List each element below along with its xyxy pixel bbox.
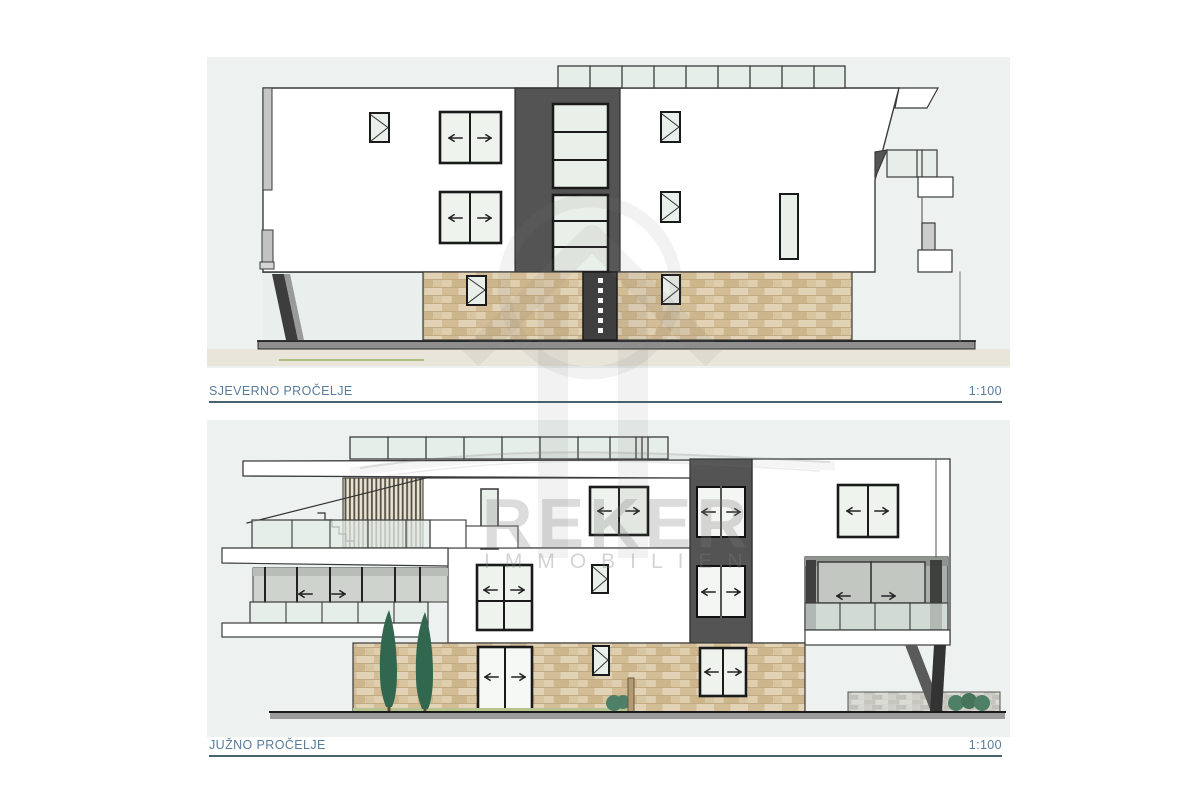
casement-window — [661, 112, 680, 142]
north-elevation-scale: 1:100 — [969, 384, 1002, 398]
floor-slab — [222, 548, 448, 566]
south-elevation-drawing — [207, 420, 1010, 737]
floor-slab — [222, 623, 428, 637]
north-elevation-label: SJEVERNO PROČELJE — [209, 384, 353, 398]
south-elevation-caption: JUŽNO PROČELJE 1:100 — [209, 738, 1002, 757]
entrance-door — [583, 272, 617, 340]
stacked-window — [553, 104, 608, 188]
glass-balustrade — [805, 603, 948, 630]
glazed-door — [477, 565, 532, 630]
glass-balustrade — [250, 602, 428, 623]
ground-line — [270, 712, 1005, 719]
sliding-window — [838, 485, 898, 537]
recessed-balcony — [805, 557, 948, 630]
south-elevation-label: JUŽNO PROČELJE — [209, 738, 326, 752]
ground-line — [207, 341, 1010, 366]
sliding-window — [440, 192, 501, 243]
south-elevation-scale: 1:100 — [969, 738, 1002, 752]
sliding-window — [440, 112, 501, 163]
recessed-glazing — [253, 568, 448, 602]
casement-window — [661, 192, 680, 222]
shrub — [948, 693, 990, 711]
post — [628, 678, 634, 712]
balcony-slab — [805, 630, 950, 645]
narrow-window — [780, 194, 798, 259]
roof-glass-railing — [558, 66, 845, 88]
north-elevation-caption: SJEVERNO PROČELJE 1:100 — [209, 384, 1002, 403]
north-elevation-drawing — [207, 57, 1010, 368]
casement-window — [370, 113, 389, 142]
entrance-door — [478, 647, 532, 712]
casement-window — [467, 276, 486, 305]
elevation-sheet: REKER IMMOBILIEN SJEVERNO PROČELJE 1:100… — [0, 0, 1200, 795]
sliding-window — [700, 648, 746, 696]
sliding-window — [697, 566, 745, 617]
watermark-subtitle: IMMOBILIEN — [484, 550, 758, 573]
undercroft — [263, 272, 423, 340]
casement-window — [593, 646, 609, 675]
glass-balustrade — [252, 520, 430, 548]
